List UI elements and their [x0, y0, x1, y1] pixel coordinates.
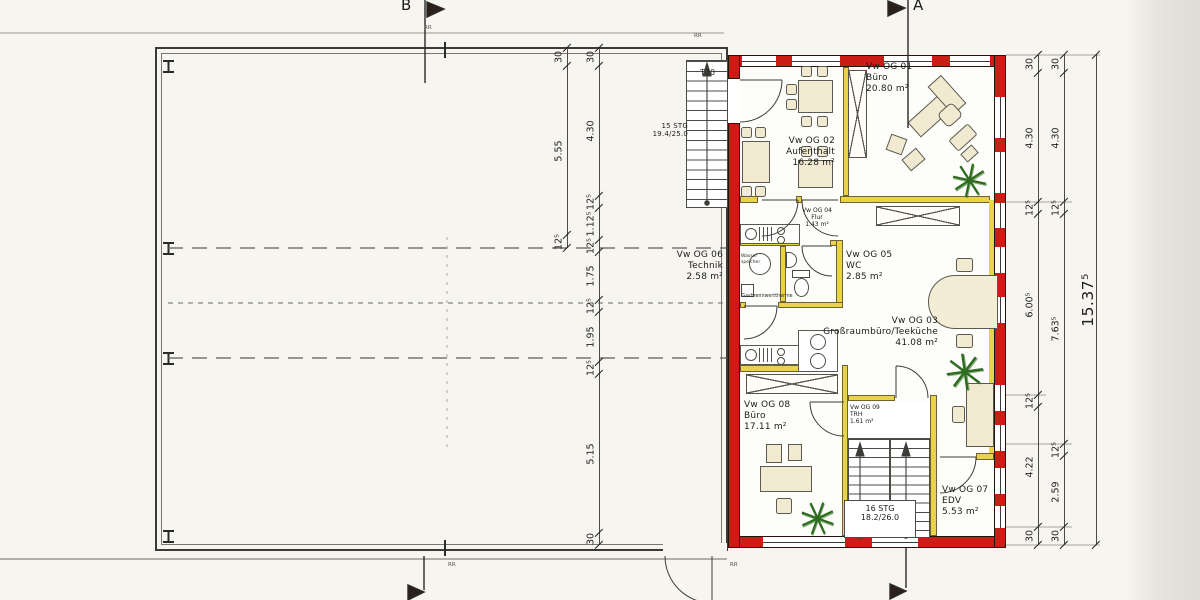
- chair: [801, 66, 812, 77]
- desk: [760, 466, 812, 492]
- section-letter-b: B: [401, 0, 411, 14]
- chair: [952, 406, 965, 423]
- room-label-og08: Vw OG 08 Büro 17.11 m²: [744, 400, 790, 432]
- window: [994, 385, 1006, 411]
- table: [798, 80, 833, 113]
- dim-value: 5.55: [554, 140, 565, 161]
- room-label-og01: Vw OG 01 Büro 20.80 m²: [866, 62, 912, 94]
- dim-value: 1.95: [586, 326, 597, 347]
- room-label-og06: Vw OG 06 Technik 2.58 m²: [666, 250, 723, 282]
- table: [742, 141, 770, 183]
- dim-value: 4.22: [1025, 456, 1036, 477]
- window: [950, 55, 990, 67]
- room-area: 20.80 m²: [866, 84, 912, 95]
- room-name: Flur: [794, 214, 840, 221]
- chair: [786, 84, 797, 95]
- wall-wc-og03: [836, 240, 843, 308]
- stair-ratio: 18.2/26.0: [845, 513, 915, 522]
- room-label-og03: Vw OG 03 Großraumbüro/Teeküche 41.08 m²: [818, 316, 938, 348]
- dim-value: 4.30: [1025, 127, 1036, 148]
- toilet-tank-icon: [792, 270, 810, 278]
- room-name: Büro: [866, 73, 912, 84]
- exterior-wall-left: [728, 55, 740, 548]
- room-name: Großraumbüro/Teeküche: [818, 327, 938, 338]
- chair: [741, 127, 752, 138]
- chair: [755, 186, 766, 197]
- column-icon: [163, 242, 174, 255]
- room-label-og04: Vw OG 04 Flur 1.43 m²: [794, 207, 840, 229]
- column-icon: [163, 530, 174, 543]
- window: [742, 55, 776, 67]
- drainer-icon: [759, 227, 772, 241]
- dim-value: 12⁵: [586, 238, 597, 254]
- dim-value: 12⁵: [1025, 200, 1036, 216]
- side-table: [766, 444, 782, 463]
- room-id: Vw OG 05: [846, 250, 892, 261]
- room-label-og07: Vw OG 07 EDV 5.53 m²: [942, 485, 988, 517]
- chair: [956, 258, 973, 272]
- hall-inner-wall-line: [161, 53, 722, 545]
- dim-value: 2.59: [1051, 481, 1062, 502]
- dim-value: 30: [586, 51, 597, 63]
- t30-door-opening: [728, 78, 740, 124]
- section-letter-a: A: [913, 0, 923, 14]
- dim-value: 4.30: [1051, 127, 1062, 148]
- chair: [755, 127, 766, 138]
- room-id: Vw OG 07: [942, 485, 988, 496]
- dim-value: 12⁵: [1025, 393, 1036, 409]
- dim-value: 12⁵: [1051, 200, 1062, 216]
- room-name: Aufenthalt: [778, 147, 835, 158]
- wall-edv-top: [976, 453, 994, 460]
- sink-icon: [745, 228, 757, 240]
- room-area: 2.85 m²: [846, 272, 892, 283]
- window: [994, 468, 1006, 494]
- dim-value: 1.75: [586, 265, 597, 286]
- room-label-og05: Vw OG 05 WC 2.85 m²: [846, 250, 892, 282]
- dim-value: 1.12⁵: [586, 212, 597, 237]
- wall-technik-bottom-2: [778, 302, 843, 308]
- chair: [817, 66, 828, 77]
- dim-value: 7.63⁵: [1051, 317, 1062, 342]
- dim-value: 12⁵: [586, 298, 597, 314]
- stair-ratio: 19.4/25.0: [642, 130, 688, 138]
- dim-value: 30: [586, 533, 597, 545]
- chair: [786, 99, 797, 110]
- room-area: 2.58 m²: [666, 272, 723, 283]
- room-id: Vw OG 04: [794, 207, 840, 214]
- window: [994, 247, 1006, 273]
- dim-value: 5.15: [586, 443, 597, 464]
- dim-value: 30: [1051, 530, 1062, 542]
- dim-value: 12⁵: [586, 360, 597, 376]
- door-arc-exit: [665, 556, 712, 600]
- room-area: 5.53 m²: [942, 507, 988, 518]
- stair-steps: 15 STG: [642, 122, 688, 130]
- cabinet: [848, 70, 867, 158]
- room-id: Vw OG 01: [866, 62, 912, 73]
- roof-label: RR: [694, 33, 702, 39]
- room-area: 1.61 m²: [850, 418, 880, 425]
- section-arrow-b-bottom-icon: [408, 585, 424, 600]
- toilet-icon: [794, 278, 809, 297]
- room-area: 1.43 m²: [794, 221, 840, 228]
- plant-icon: ✳: [941, 345, 989, 400]
- dim-value: 6.00⁵: [1025, 292, 1036, 317]
- wall-corridor-top-1: [740, 196, 758, 203]
- section-arrow-a-icon: [888, 1, 905, 16]
- floor-plan-canvas: ✳ ✳ ✳: [0, 0, 1200, 600]
- external-staircase: [686, 60, 728, 208]
- wall-trh-top: [848, 395, 895, 401]
- room-name: TRH: [850, 411, 880, 418]
- scan-page-edge: [1126, 0, 1200, 600]
- room-area: 17.11 m²: [744, 422, 790, 433]
- axis-tick-top: [444, 42, 446, 58]
- room-id: Vw OG 03: [818, 316, 938, 327]
- meeting-desk: [928, 275, 998, 329]
- wall-corridor-top-2: [796, 196, 802, 203]
- external-stair-label: 15 STG 19.4/25.0: [642, 122, 688, 139]
- shelf: [746, 374, 838, 394]
- chair: [776, 498, 792, 514]
- room-id: Vw OG 08: [744, 400, 790, 411]
- wall-trh-edv: [930, 395, 937, 536]
- room-name: Technik: [666, 261, 723, 272]
- dim-value: 15.37⁵: [1079, 273, 1097, 327]
- window: [994, 506, 1006, 528]
- fire-door-label: T30: [700, 68, 715, 77]
- sink-icon: [745, 349, 757, 361]
- drainer-icon: [759, 348, 772, 362]
- cooktop-icon: [810, 353, 826, 369]
- stair-steps: 16 STG: [845, 504, 915, 513]
- column-icon: [163, 352, 174, 365]
- chair: [741, 186, 752, 197]
- roof-label: RR: [448, 562, 456, 568]
- axis-tick-bottom: [444, 540, 446, 556]
- room-area: 41.08 m²: [818, 338, 938, 349]
- room-label-og09: Vw OG 09 TRH 1.61 m²: [850, 404, 880, 426]
- room-name: WC: [846, 261, 892, 272]
- window: [994, 97, 1006, 138]
- dim-value: 4.30: [586, 120, 597, 141]
- dim-value: 12⁵: [586, 194, 597, 210]
- room-id: Vw OG 09: [850, 404, 880, 411]
- dim-value: 12⁵: [554, 234, 565, 250]
- chair: [817, 116, 828, 127]
- window: [994, 203, 1006, 228]
- dim-value: 30: [1025, 58, 1036, 70]
- side-table: [788, 444, 802, 461]
- section-arrow-a-bottom-icon: [890, 584, 906, 599]
- roof-label: RR: [424, 25, 432, 31]
- dim-value: 12⁵: [1051, 442, 1062, 458]
- dim-value: 30: [554, 51, 565, 63]
- shelf: [876, 206, 960, 226]
- room-name: EDV: [942, 496, 988, 507]
- internal-stair-label: 16 STG 18.2/26.0: [844, 500, 916, 538]
- window: [792, 55, 840, 67]
- cooktop-icon: [777, 357, 785, 365]
- boiler-label: Gasbrennwerttherme: [738, 294, 796, 299]
- tank-label: Wasser speicher: [741, 254, 760, 266]
- cooktop-icon: [777, 348, 785, 356]
- window: [994, 152, 1006, 193]
- hall-door-gap: [663, 543, 727, 557]
- dim-value: 30: [1051, 58, 1062, 70]
- cooktop-icon: [777, 236, 785, 244]
- tank-label-line2: speicher: [741, 260, 760, 266]
- wall-technik-bottom-1: [740, 302, 746, 308]
- room-id: Vw OG 02: [778, 136, 835, 147]
- column-icon: [163, 60, 174, 73]
- dim-value: 30: [1025, 530, 1036, 542]
- section-arrow-b-icon: [427, 2, 444, 17]
- room-id: Vw OG 06: [666, 250, 723, 261]
- chair: [801, 116, 812, 127]
- window: [994, 425, 1006, 451]
- roof-label: RR: [730, 562, 738, 568]
- room-name: Büro: [744, 411, 790, 422]
- room-label-og02: Vw OG 02 Aufenthalt 16.28 m²: [778, 136, 835, 168]
- cooktop-icon: [777, 227, 785, 235]
- room-area: 16.28 m²: [778, 158, 835, 169]
